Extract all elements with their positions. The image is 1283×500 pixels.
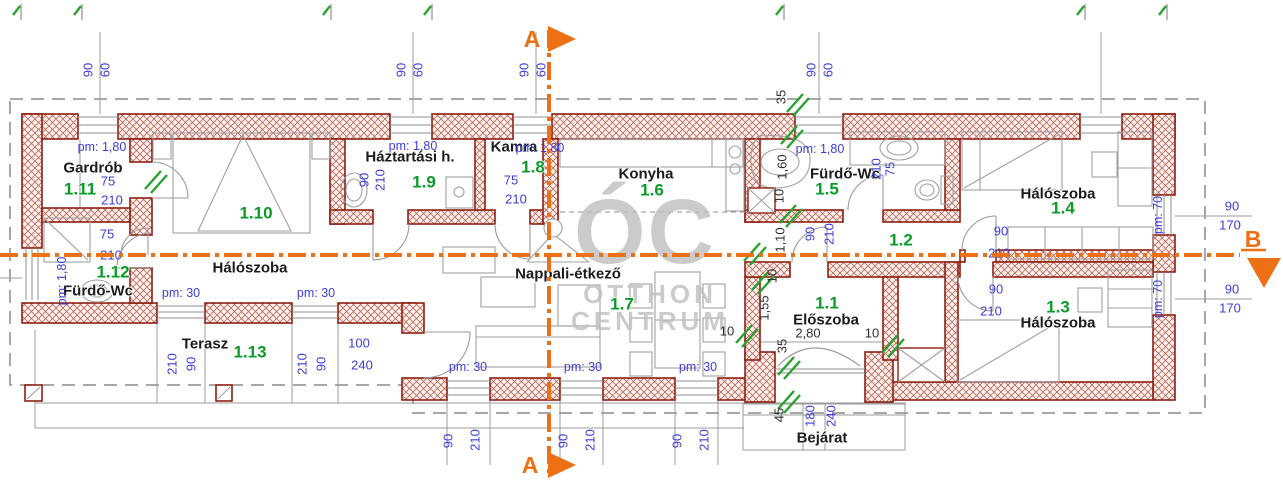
wall-segment xyxy=(402,303,424,333)
dim-label-68: 90 xyxy=(441,434,456,448)
floor-plan-drawing: ÓC OTTHON CENTRUM GardróbHálószobaFürdő-… xyxy=(0,0,1283,500)
new-opening-mark xyxy=(784,361,800,379)
dim-label-89: 10 xyxy=(865,326,879,341)
dim-label-61: 60 xyxy=(821,63,836,77)
wall-segment xyxy=(205,303,292,323)
room-name-furdo-wc-1-12: Fürdő-Wc xyxy=(63,283,133,300)
wall-segment xyxy=(603,378,675,400)
watermark: ÓC OTTHON CENTRUM xyxy=(571,180,729,336)
new-opening-mark xyxy=(778,391,794,409)
dim-label-26: pm: 1,80 xyxy=(78,140,127,154)
section-arrow-b xyxy=(1247,258,1281,288)
survey-tick-mark xyxy=(13,6,20,15)
watermark-otthon: OTTHON xyxy=(583,279,717,309)
room-name-haloszoba-1-10: Hálószoba xyxy=(212,260,288,277)
wall-segment xyxy=(883,210,960,222)
dim-label-63: 90 xyxy=(184,357,199,371)
survey-tick-mark xyxy=(1077,6,1084,15)
new-opening-mark xyxy=(787,94,803,112)
dim-label-87: 45 xyxy=(772,408,787,422)
dim-label-70: 90 xyxy=(556,434,571,448)
dim-label-80: 35 xyxy=(774,90,789,104)
dim-label-56: 90 xyxy=(394,63,409,77)
dim-label-62: 210 xyxy=(165,353,180,375)
floorplan-page: ÓC OTTHON CENTRUM GardróbHálószobaFürdő-… xyxy=(0,0,1283,500)
dim-label-32: pm: 30 xyxy=(297,286,335,300)
room-num-1-6: 1.6 xyxy=(640,181,664,200)
dim-label-46: 90 xyxy=(994,224,1008,239)
survey-tick-mark xyxy=(74,6,81,15)
section-arrow-a-bottom xyxy=(548,452,576,478)
dim-label-76: 210 xyxy=(869,158,884,180)
wardrobe-icon xyxy=(1108,270,1152,327)
new-opening-mark xyxy=(778,357,794,375)
wall-segment xyxy=(552,114,795,139)
room-num-1-11: 1.11 xyxy=(64,180,96,199)
dim-label-73: 210 xyxy=(697,429,712,451)
section-label-b: B xyxy=(1245,226,1262,252)
dim-label-84: 10 xyxy=(765,269,780,283)
room-num-1-13: 1.13 xyxy=(233,343,266,362)
survey-tick-mark xyxy=(424,6,431,15)
dim-label-54: 90 xyxy=(81,63,96,77)
dim-label-51: 170 xyxy=(1219,218,1241,233)
dim-label-78: 180 xyxy=(803,405,818,427)
dim-label-48: 90 xyxy=(989,282,1003,297)
new-opening-mark xyxy=(151,175,167,193)
dim-label-57: 60 xyxy=(411,63,426,77)
dim-label-69: 210 xyxy=(468,429,483,451)
survey-tick-mark xyxy=(323,6,330,15)
wall-segment xyxy=(118,114,390,139)
dim-label-77: 75 xyxy=(883,162,898,176)
room-num-1-8: 1.8 xyxy=(521,158,545,177)
wall-segment xyxy=(888,382,1153,400)
desk-icon xyxy=(1118,132,1152,206)
dim-label-27: pm: 1,80 xyxy=(389,139,438,153)
room-num-1-12: 1.12 xyxy=(96,263,129,282)
dim-label-88: 2,80 xyxy=(795,326,820,341)
room-num-1-10: 1.10 xyxy=(239,204,272,223)
room-num-1-1: 1.1 xyxy=(815,294,839,313)
room-num-1-9: 1.9 xyxy=(412,173,436,192)
new-opening-mark xyxy=(793,98,809,116)
room-name-nappali: Nappali-étkező xyxy=(515,266,621,283)
dim-label-90: 10 xyxy=(720,324,734,339)
dim-label-43: 210 xyxy=(505,192,527,207)
dim-label-28: pm: 1,80 xyxy=(516,141,565,155)
wall-segment xyxy=(330,210,373,224)
wall-segment xyxy=(828,262,960,277)
room-num-1-5: 1.5 xyxy=(815,180,839,199)
dim-label-52: 90 xyxy=(1225,282,1239,297)
wall-segment xyxy=(408,210,495,224)
dim-label-33: pm: 30 xyxy=(449,360,487,374)
dim-label-53: 170 xyxy=(1219,301,1241,316)
dim-label-81: 1,60 xyxy=(775,154,790,179)
entrance-label: Bejárat xyxy=(797,430,848,447)
dim-label-31: pm: 30 xyxy=(162,286,200,300)
kitchen-counter xyxy=(560,139,743,167)
dim-label-42: 75 xyxy=(504,173,518,188)
wall-segment xyxy=(22,303,157,323)
tv-stand xyxy=(443,247,495,273)
new-opening-mark xyxy=(744,243,760,261)
dim-label-64: 210 xyxy=(295,353,310,375)
dim-label-49: 210 xyxy=(980,304,1002,319)
wall-segment xyxy=(402,378,447,400)
dim-label-72: 90 xyxy=(670,434,685,448)
wall-segment xyxy=(1153,114,1175,195)
dim-label-37: pm: 70 xyxy=(1151,280,1165,318)
dim-label-45: 240 xyxy=(351,358,373,373)
dim-label-50: 90 xyxy=(1225,199,1239,214)
dim-label-38: 75 xyxy=(101,174,115,189)
dim-label-55: 60 xyxy=(98,63,113,77)
dim-label-29: pm: 1,80 xyxy=(796,142,845,156)
dim-label-82: 10 xyxy=(772,189,787,203)
dim-label-65: 90 xyxy=(314,357,329,371)
dim-label-75: 210 xyxy=(822,223,837,245)
wall-segment xyxy=(945,262,958,382)
room-name-terasz: Terasz xyxy=(182,336,228,353)
watermark-centrum: CENTRUM xyxy=(571,306,729,336)
wall-segment xyxy=(130,139,152,162)
wall-segment xyxy=(432,114,513,139)
dim-label-60: 90 xyxy=(804,63,819,77)
wall-segment xyxy=(22,114,42,248)
wall-segment xyxy=(1153,315,1175,400)
washer-icon xyxy=(446,177,473,208)
dim-label-35: pm: 30 xyxy=(679,360,717,374)
wall-segment xyxy=(475,139,485,210)
dim-label-86: 35 xyxy=(775,339,790,353)
dim-label-36: pm: 70 xyxy=(1151,196,1165,234)
room-num-1-4: 1.4 xyxy=(1051,199,1075,218)
section-arrow-a-top xyxy=(548,26,576,52)
section-label-a-bottom: A xyxy=(522,452,539,478)
wall-segment xyxy=(130,268,152,303)
room-num-1-3: 1.3 xyxy=(1046,298,1070,317)
dim-label-83: 1,10 xyxy=(773,227,788,252)
dim-label-58: 90 xyxy=(517,63,532,77)
dim-label-74: 90 xyxy=(803,227,818,241)
dim-label-34: pm: 30 xyxy=(564,360,602,374)
dim-label-67: 210 xyxy=(373,169,388,191)
dim-label-79: 240 xyxy=(824,405,839,427)
new-opening-mark xyxy=(145,171,161,189)
wall-segment xyxy=(42,208,130,222)
dim-label-66: 90 xyxy=(357,173,372,187)
dim-label-59: 60 xyxy=(534,63,549,77)
section-label-a-top: A xyxy=(524,26,541,52)
room-num-1-2: 1.2 xyxy=(889,231,913,250)
dim-label-44: 100 xyxy=(348,336,370,351)
survey-tick-mark xyxy=(776,6,783,15)
dim-label-85: 1,55 xyxy=(757,295,772,320)
room-num-1-7: 1.7 xyxy=(610,295,634,314)
wall-segment xyxy=(130,198,152,235)
dim-label-40: 75 xyxy=(100,227,114,242)
room-name-haloszoba-1-3: Hálószoba xyxy=(1020,315,1096,332)
survey-tick-mark xyxy=(1159,6,1166,15)
dim-label-39: 210 xyxy=(101,193,123,208)
dim-label-30: pm: 1,80 xyxy=(55,257,69,306)
dim-label-71: 210 xyxy=(583,429,598,451)
